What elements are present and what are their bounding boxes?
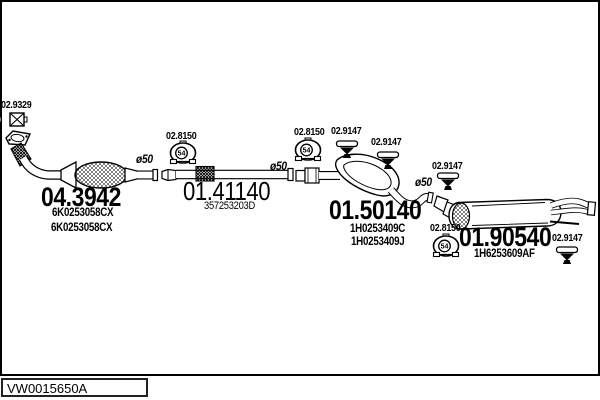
clamp-size-label: 54 <box>441 244 449 251</box>
label-center-muffler-code: 01.50140 <box>329 197 421 224</box>
label-catalyst-part-2: 6K0253058CX <box>51 223 112 235</box>
clamp-size-label: 54 <box>303 148 311 155</box>
label-rear-muffler-code: 01.90540 <box>459 224 551 251</box>
label-center-muffler-part-2: 1H0253409J <box>351 237 404 249</box>
label-gasket-code: 02.9329 <box>1 100 31 111</box>
label-center-pipe-part: 357253203D <box>204 201 255 212</box>
label-hanger-code-4: 02.9147 <box>552 233 582 244</box>
pipe-connector <box>162 170 176 181</box>
label-clamp-code-3: 02.8150 <box>430 223 460 234</box>
label-catalyst-part-1: 6K0253058CX <box>52 208 113 220</box>
label-hanger-code-3: 02.9147 <box>432 161 462 172</box>
clamp-size-label: 54 <box>178 151 186 158</box>
center-muffler-inlet <box>296 168 340 183</box>
front-flange <box>6 131 30 145</box>
front-pipe <box>23 158 62 175</box>
clamp-icon: 54 <box>296 138 321 161</box>
label-drawing-code: VW0015650A <box>7 381 87 396</box>
drawing-code-box: VW0015650A <box>1 378 148 397</box>
hanger-icon <box>557 247 578 264</box>
label-center-muffler-part-1: 1H0253409C <box>350 224 405 236</box>
label-diameter-1: ø50 <box>136 153 153 165</box>
label-rear-muffler-part: 1H6253609AF <box>474 249 535 261</box>
label-clamp-code-1: 02.8150 <box>166 131 196 142</box>
label-diameter-3: ø50 <box>415 176 432 188</box>
hanger-icon <box>438 173 459 190</box>
flange-gasket-icon <box>0 113 27 126</box>
exhaust-parts-diagram-page: 54 54 54 <box>0 0 600 400</box>
clamp-icon: 54 <box>434 234 459 257</box>
label-hanger-code-1: 02.9147 <box>331 126 361 137</box>
clamp-icon: 54 <box>171 141 196 164</box>
label-hanger-code-2: 02.9147 <box>371 137 401 148</box>
label-clamp-code-2: 02.8150 <box>294 127 324 138</box>
label-diameter-2: ø50 <box>270 160 287 172</box>
